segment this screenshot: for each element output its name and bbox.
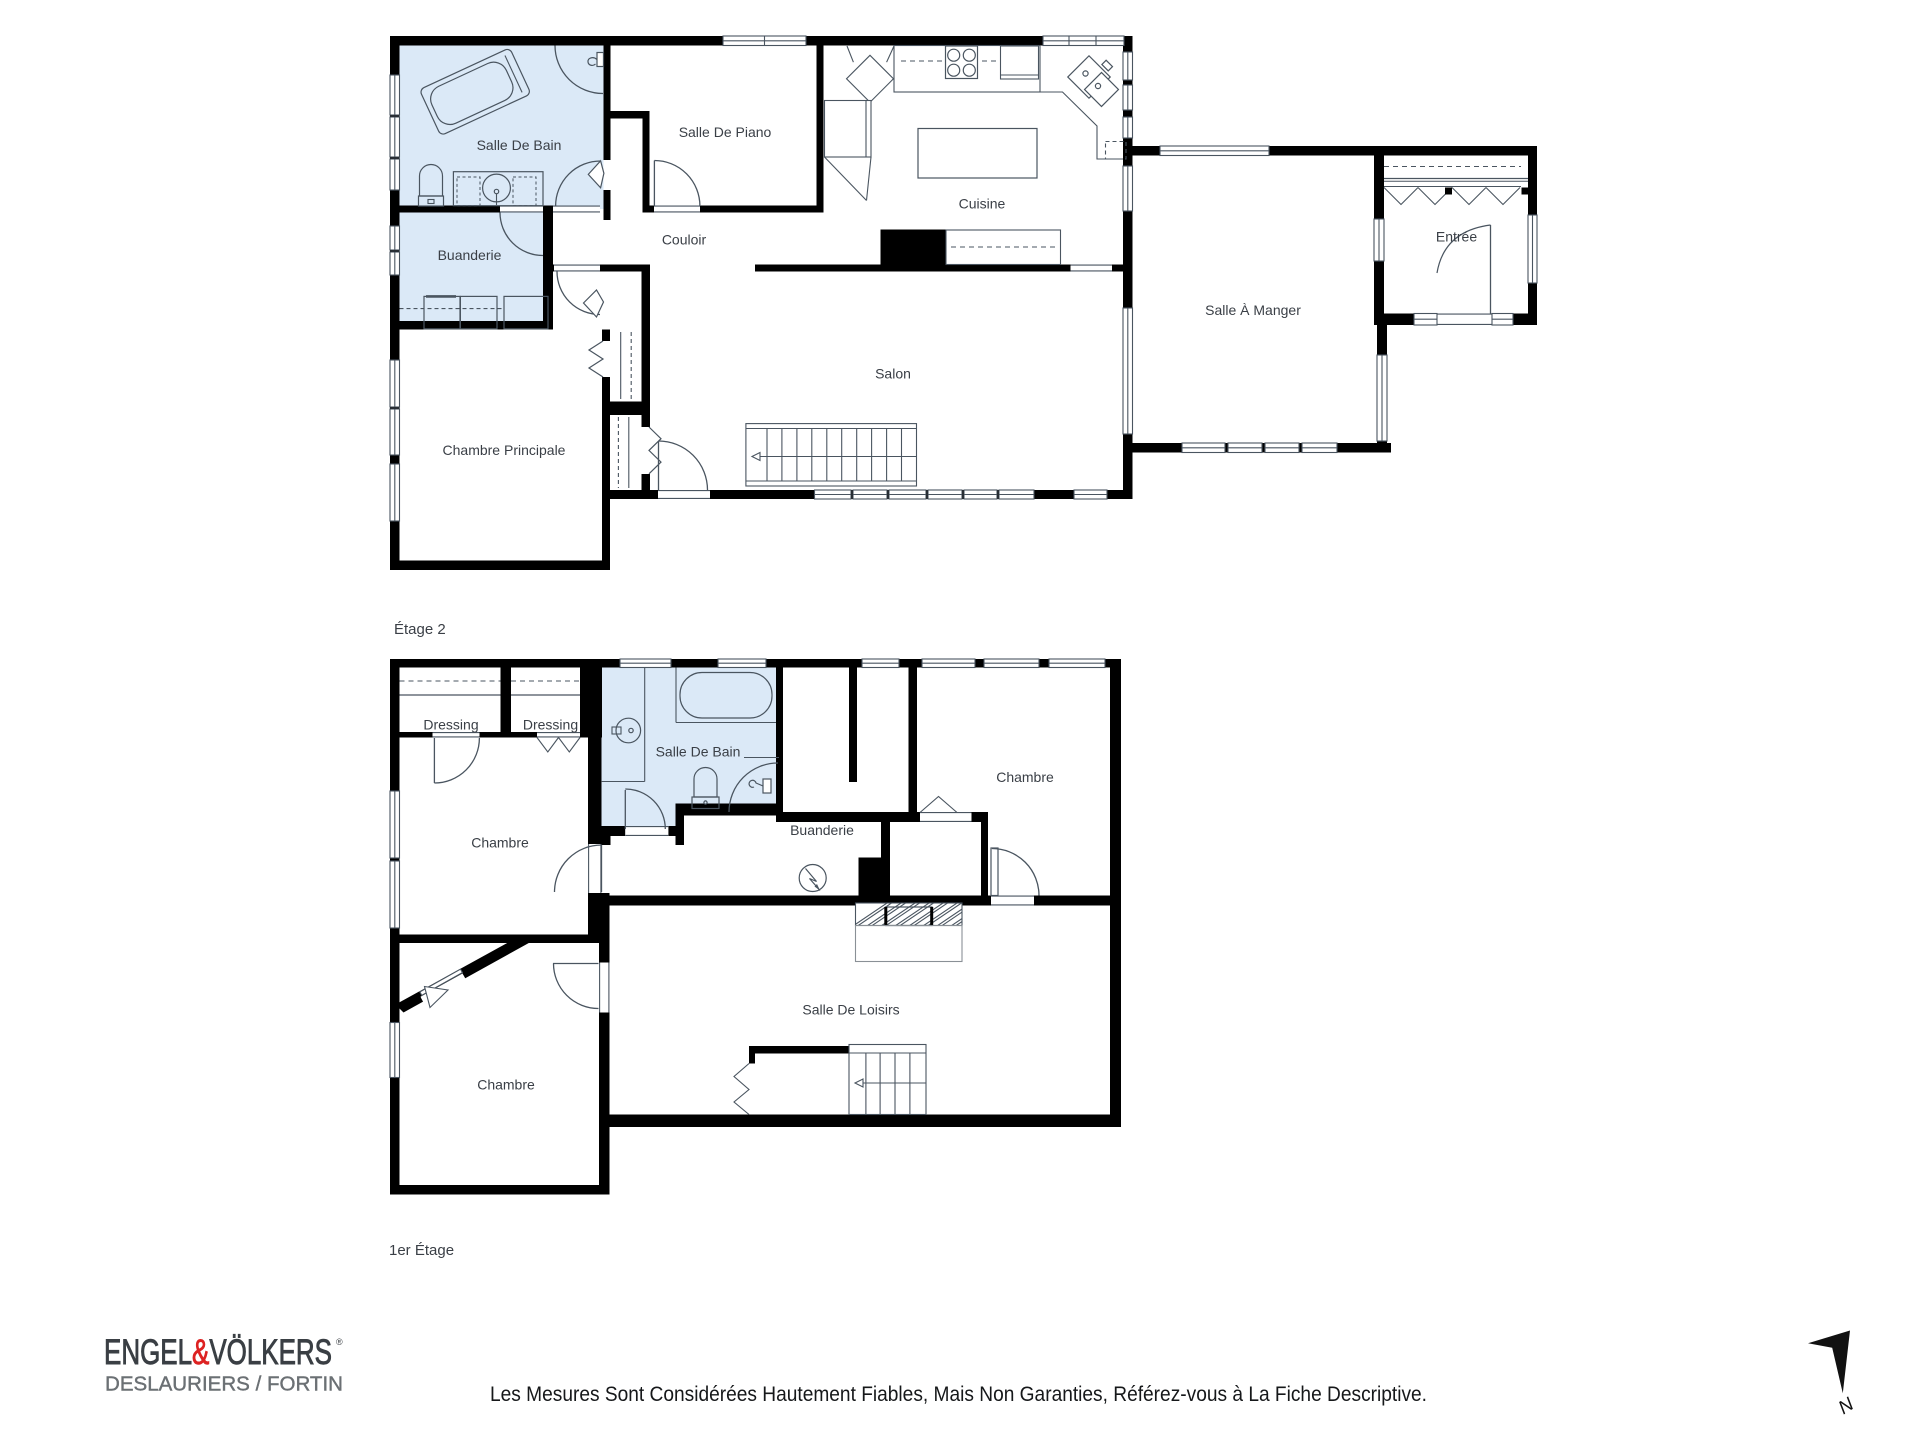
svg-text:Chambre Principale: Chambre Principale <box>443 442 566 458</box>
svg-text:Salle De Piano: Salle De Piano <box>679 124 772 140</box>
svg-text:Salle De Loisirs: Salle De Loisirs <box>802 1002 899 1018</box>
svg-text:Couloir: Couloir <box>662 232 707 248</box>
svg-text:ENGEL&VÖLKERS: ENGEL&VÖLKERS <box>104 1333 332 1372</box>
svg-text:Les Mesures Sont Considérées H: Les Mesures Sont Considérées Hautement F… <box>490 1382 1427 1406</box>
svg-text:Salon: Salon <box>875 366 911 382</box>
svg-text:Buanderie: Buanderie <box>790 822 854 838</box>
svg-text:Buanderie: Buanderie <box>438 247 502 263</box>
svg-text:Entrée: Entrée <box>1436 229 1477 245</box>
svg-text:Cuisine: Cuisine <box>959 196 1006 212</box>
svg-text:Salle De Bain: Salle De Bain <box>477 137 562 153</box>
svg-text:Dressing: Dressing <box>423 717 478 733</box>
svg-text:Salle À Manger: Salle À Manger <box>1205 302 1301 318</box>
svg-text:DESLAURIERS / FORTIN: DESLAURIERS / FORTIN <box>105 1374 343 1396</box>
svg-text:®: ® <box>336 1337 343 1347</box>
svg-text:Salle De Bain: Salle De Bain <box>656 744 741 760</box>
svg-text:Chambre: Chambre <box>471 835 529 851</box>
svg-text:Étage 2: Étage 2 <box>394 621 446 638</box>
svg-text:Chambre: Chambre <box>477 1077 535 1093</box>
svg-text:Dressing: Dressing <box>523 717 578 733</box>
svg-text:1er Étage: 1er Étage <box>389 1242 454 1259</box>
svg-text:Chambre: Chambre <box>996 769 1054 785</box>
